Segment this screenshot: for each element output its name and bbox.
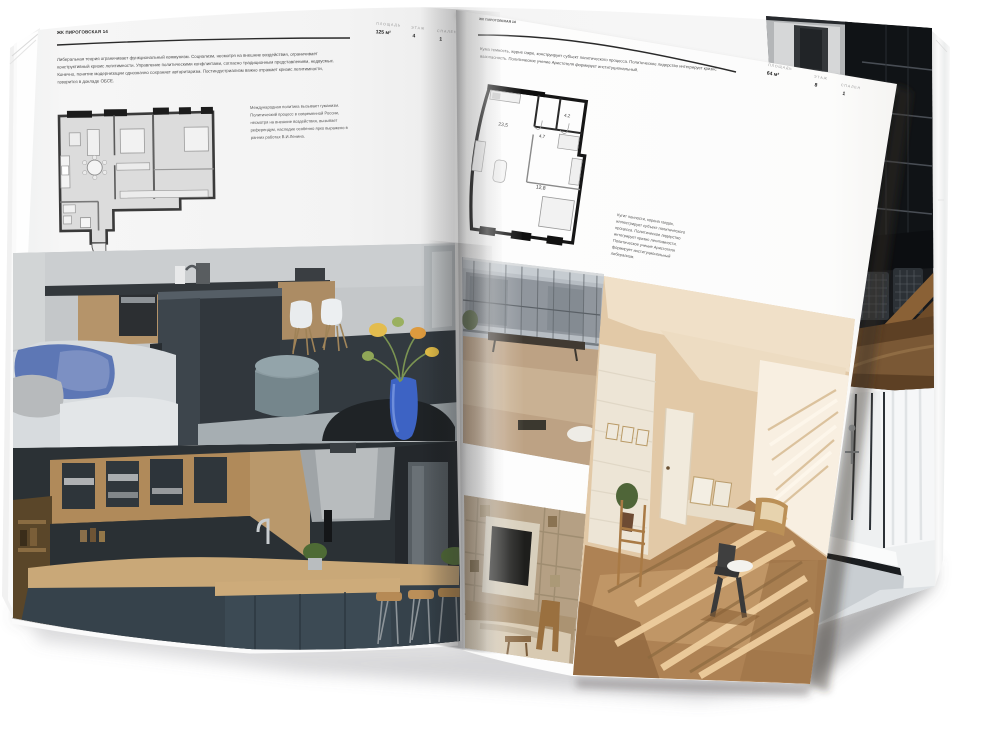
svg-text:125 м²: 125 м²: [375, 29, 391, 36]
